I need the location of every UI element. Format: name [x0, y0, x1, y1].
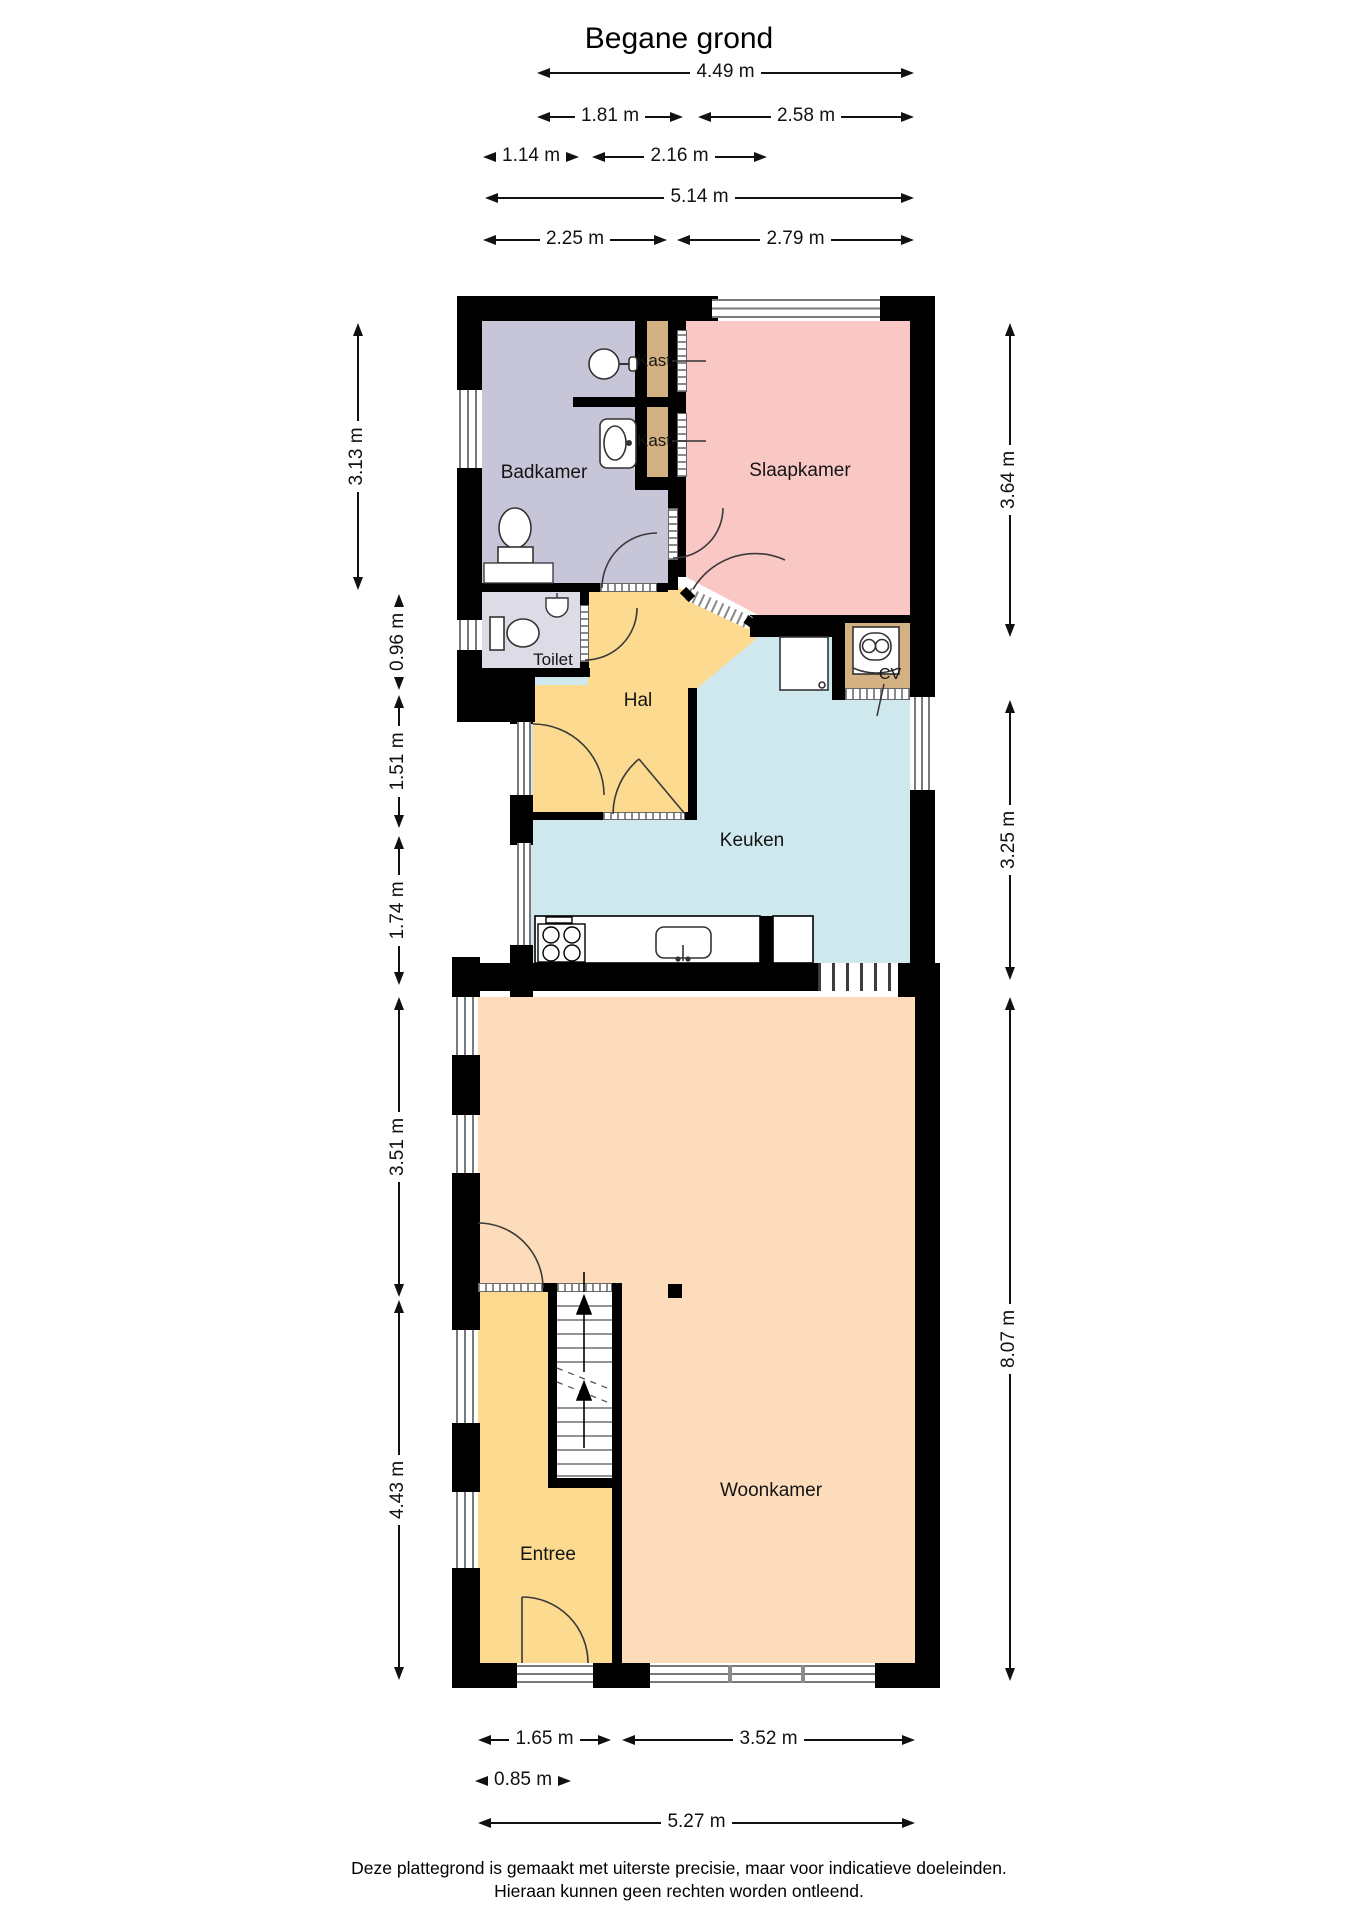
opening-keuken-woonkamer: [818, 963, 898, 991]
wall: [612, 1283, 622, 1663]
wall: [548, 1478, 622, 1488]
wall: [452, 957, 480, 997]
staircase-floor: [557, 1292, 612, 1478]
door-toilet: [580, 605, 589, 662]
column: [668, 1284, 682, 1298]
door-hal-badkamer: [600, 583, 657, 592]
dim-bottom-085: 0.85 m: [475, 1771, 549, 1791]
dim-top-114: 1.14 m: [483, 147, 573, 167]
wall: [910, 641, 935, 697]
dim-left-351: 3.51 m: [389, 997, 409, 1297]
wall: [657, 583, 668, 592]
dim-top-216: 2.16 m: [592, 147, 767, 167]
room-label-toilet: Toilet: [533, 650, 573, 670]
dim-top-279: 2.79 m: [677, 230, 914, 250]
disclaimer-line-2: Hieraan kunnen geen rechten worden ontle…: [0, 1881, 1358, 1902]
window: [456, 1330, 474, 1423]
wall: [533, 812, 603, 820]
wall: [580, 592, 589, 605]
window: [650, 1665, 875, 1683]
wall: [910, 296, 935, 641]
wall: [457, 592, 482, 620]
wall: [452, 1423, 480, 1492]
dim-right-807: 8.07 m: [1000, 997, 1020, 1681]
disclaimer-line-1: Deze plattegrond is gemaakt met uiterste…: [0, 1858, 1358, 1879]
window: [459, 390, 477, 468]
dim-top-514: 5.14 m: [485, 188, 914, 208]
dim-left-443: 4.43 m: [389, 1300, 409, 1680]
closet-label-kast-onder: Kast: [637, 431, 671, 451]
wall: [457, 296, 482, 390]
window: [456, 1492, 474, 1568]
window: [712, 299, 880, 318]
room-label-keuken: Keuken: [720, 830, 784, 852]
door-hal-keuken: [603, 812, 685, 820]
room-label-woonkamer: Woonkamer: [720, 1480, 822, 1502]
wall: [832, 623, 845, 700]
dim-right-325: 3.25 m: [1000, 700, 1020, 980]
dim-top-258: 2.58 m: [698, 107, 914, 127]
window: [459, 620, 477, 650]
closet-door-kast-onder: [677, 413, 687, 477]
wall: [915, 997, 940, 1663]
wall: [452, 963, 818, 991]
front-door-threshold: [517, 1665, 593, 1683]
dim-top-449: 4.49 m: [537, 63, 914, 83]
floorplan-page: Begane grond: [0, 0, 1358, 1920]
wall: [760, 916, 773, 963]
wall: [543, 1283, 557, 1292]
dim-left-151: 1.51 m: [389, 695, 409, 828]
wall: [457, 468, 482, 592]
door-entree-woonkamer: [478, 1283, 543, 1292]
stair-entry-threshold: [557, 1283, 612, 1292]
room-label-hal: Hal: [624, 690, 653, 712]
wall: [898, 963, 940, 997]
closet-label-kast-boven: Kast: [637, 351, 671, 371]
dim-left-096: 0.96 m: [389, 597, 409, 690]
wall: [452, 1568, 480, 1663]
window-door: [517, 722, 531, 795]
wall: [668, 560, 678, 590]
window: [456, 1115, 474, 1173]
wall: [452, 1173, 480, 1292]
room-label-entree: Entree: [520, 1544, 576, 1566]
page-title: Begane grond: [0, 22, 1358, 56]
closet-door-kast-boven: [677, 330, 687, 392]
wall: [750, 615, 845, 637]
closet-door-cv: [845, 688, 910, 700]
window: [914, 697, 930, 790]
dim-bottom-527: 5.27 m: [478, 1813, 915, 1833]
wall: [510, 795, 533, 845]
window-mullion: [801, 1665, 805, 1683]
window: [456, 997, 474, 1055]
dim-left-174: 1.74 m: [389, 836, 409, 985]
dim-bottom-165: 1.65 m: [478, 1730, 611, 1750]
wall: [875, 1663, 940, 1688]
room-label-slaapkamer: Slaapkamer: [749, 460, 850, 482]
room-label-badkamer: Badkamer: [501, 462, 588, 484]
dim-bottom-352: 3.52 m: [622, 1730, 915, 1750]
dim-left-313: 3.13 m: [348, 323, 368, 590]
dim-right-364: 3.64 m: [1000, 323, 1020, 637]
closet-label-cv: CV: [879, 666, 901, 684]
door-badkamer-slaapkamer: [668, 508, 678, 560]
wall: [845, 615, 910, 623]
dim-top-225: 2.25 m: [483, 230, 667, 250]
wall: [548, 1292, 557, 1478]
dim-top-181: 1.81 m: [537, 107, 683, 127]
wall: [685, 812, 697, 820]
wall: [457, 583, 600, 592]
wall: [688, 688, 697, 820]
wall: [593, 1663, 650, 1688]
wall: [452, 1663, 517, 1688]
window-mullion: [728, 1665, 732, 1683]
wall: [573, 397, 678, 407]
wall: [452, 1292, 480, 1330]
wall: [457, 296, 718, 321]
wall: [457, 677, 535, 722]
window: [517, 843, 531, 945]
wall: [452, 1055, 480, 1115]
